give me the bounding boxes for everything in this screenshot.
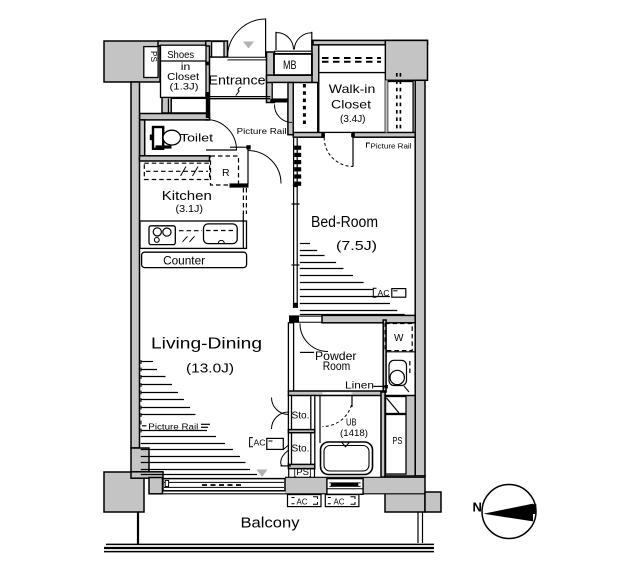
svg-text:MB: MB [283,60,297,72]
svg-text:Sto.: Sto. [292,444,310,455]
svg-text:Linen: Linen [345,379,374,391]
svg-text:AC: AC [334,498,345,507]
svg-text:Sto.: Sto. [292,411,310,422]
svg-text:(3.1J): (3.1J) [176,204,204,215]
svg-text:PS: PS [392,436,402,447]
svg-text:Entrance: Entrance [209,73,266,88]
svg-text:(1.3J): (1.3J) [170,82,199,93]
svg-text:Toilet: Toilet [180,133,213,145]
svg-text:AC: AC [378,288,390,298]
svg-text:Kitchen: Kitchen [162,188,212,203]
svg-text:Shoes: Shoes [167,49,194,61]
svg-text:Closet: Closet [331,98,372,112]
svg-text:Room: Room [323,359,351,373]
svg-text:UB: UB [346,417,357,429]
svg-text:(7.5J): (7.5J) [336,239,377,253]
svg-text:Picture Rail: Picture Rail [148,422,198,431]
svg-text:(13.0J): (13.0J) [186,361,234,376]
svg-text:[PS]: [PS] [294,467,312,478]
svg-text:Picture Rail: Picture Rail [237,127,287,136]
svg-text:Living-Dining: Living-Dining [151,336,262,353]
svg-text:R: R [222,167,230,179]
svg-text:Bed-Room: Bed-Room [311,214,378,231]
svg-text:(1418): (1418) [340,428,368,439]
svg-text:Walk-in: Walk-in [329,82,376,96]
svg-text:Picture Rail: Picture Rail [371,142,412,151]
svg-text:W: W [394,333,404,344]
svg-text:AC: AC [297,498,308,507]
svg-text:Counter: Counter [163,256,205,268]
svg-text:PS: PS [149,51,158,62]
svg-text:N: N [473,500,482,515]
svg-text:(3.4J): (3.4J) [340,114,366,125]
svg-text:Balcony: Balcony [241,516,301,532]
svg-text:AC: AC [254,438,266,448]
